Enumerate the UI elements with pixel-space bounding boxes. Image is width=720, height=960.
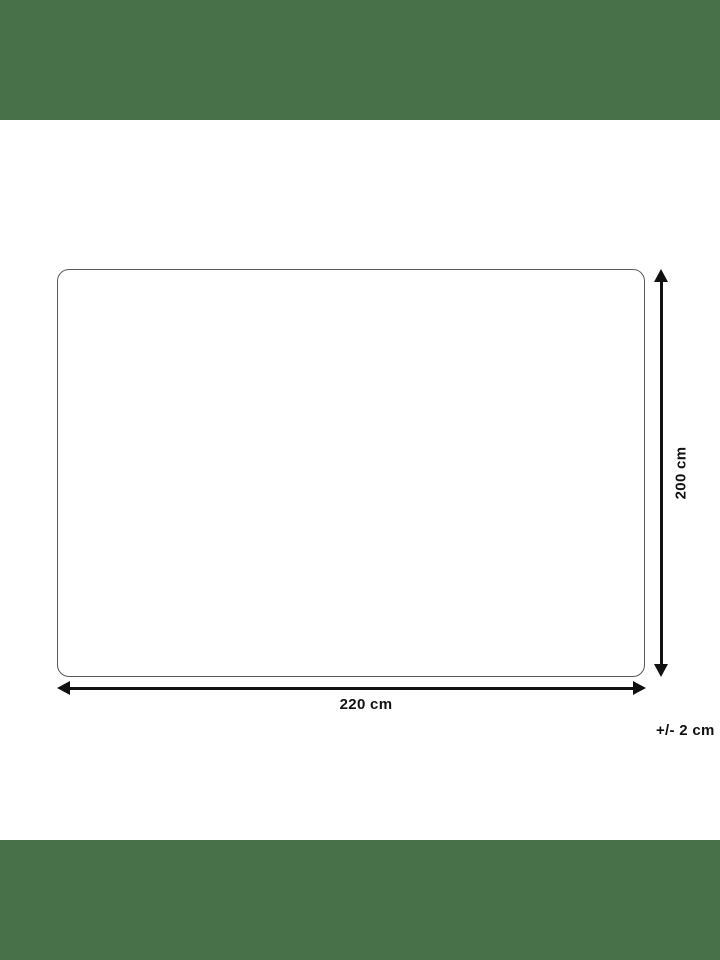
tolerance-label: +/- 2 cm — [656, 722, 715, 739]
letterbox-bottom-bar — [0, 840, 720, 960]
height-dimension-label: 200 cm — [673, 447, 690, 500]
product-dimension-image: 200 cm 220 cm +/- 2 cm — [0, 0, 720, 960]
product-outline — [57, 269, 645, 677]
horizontal-arrow-shaft — [68, 687, 636, 690]
vertical-arrow-shaft — [660, 279, 663, 667]
letterbox-top-bar — [0, 0, 720, 120]
width-dimension-label: 220 cm — [340, 696, 393, 713]
arrowhead-down-icon — [654, 664, 668, 677]
arrowhead-right-icon — [633, 681, 646, 695]
